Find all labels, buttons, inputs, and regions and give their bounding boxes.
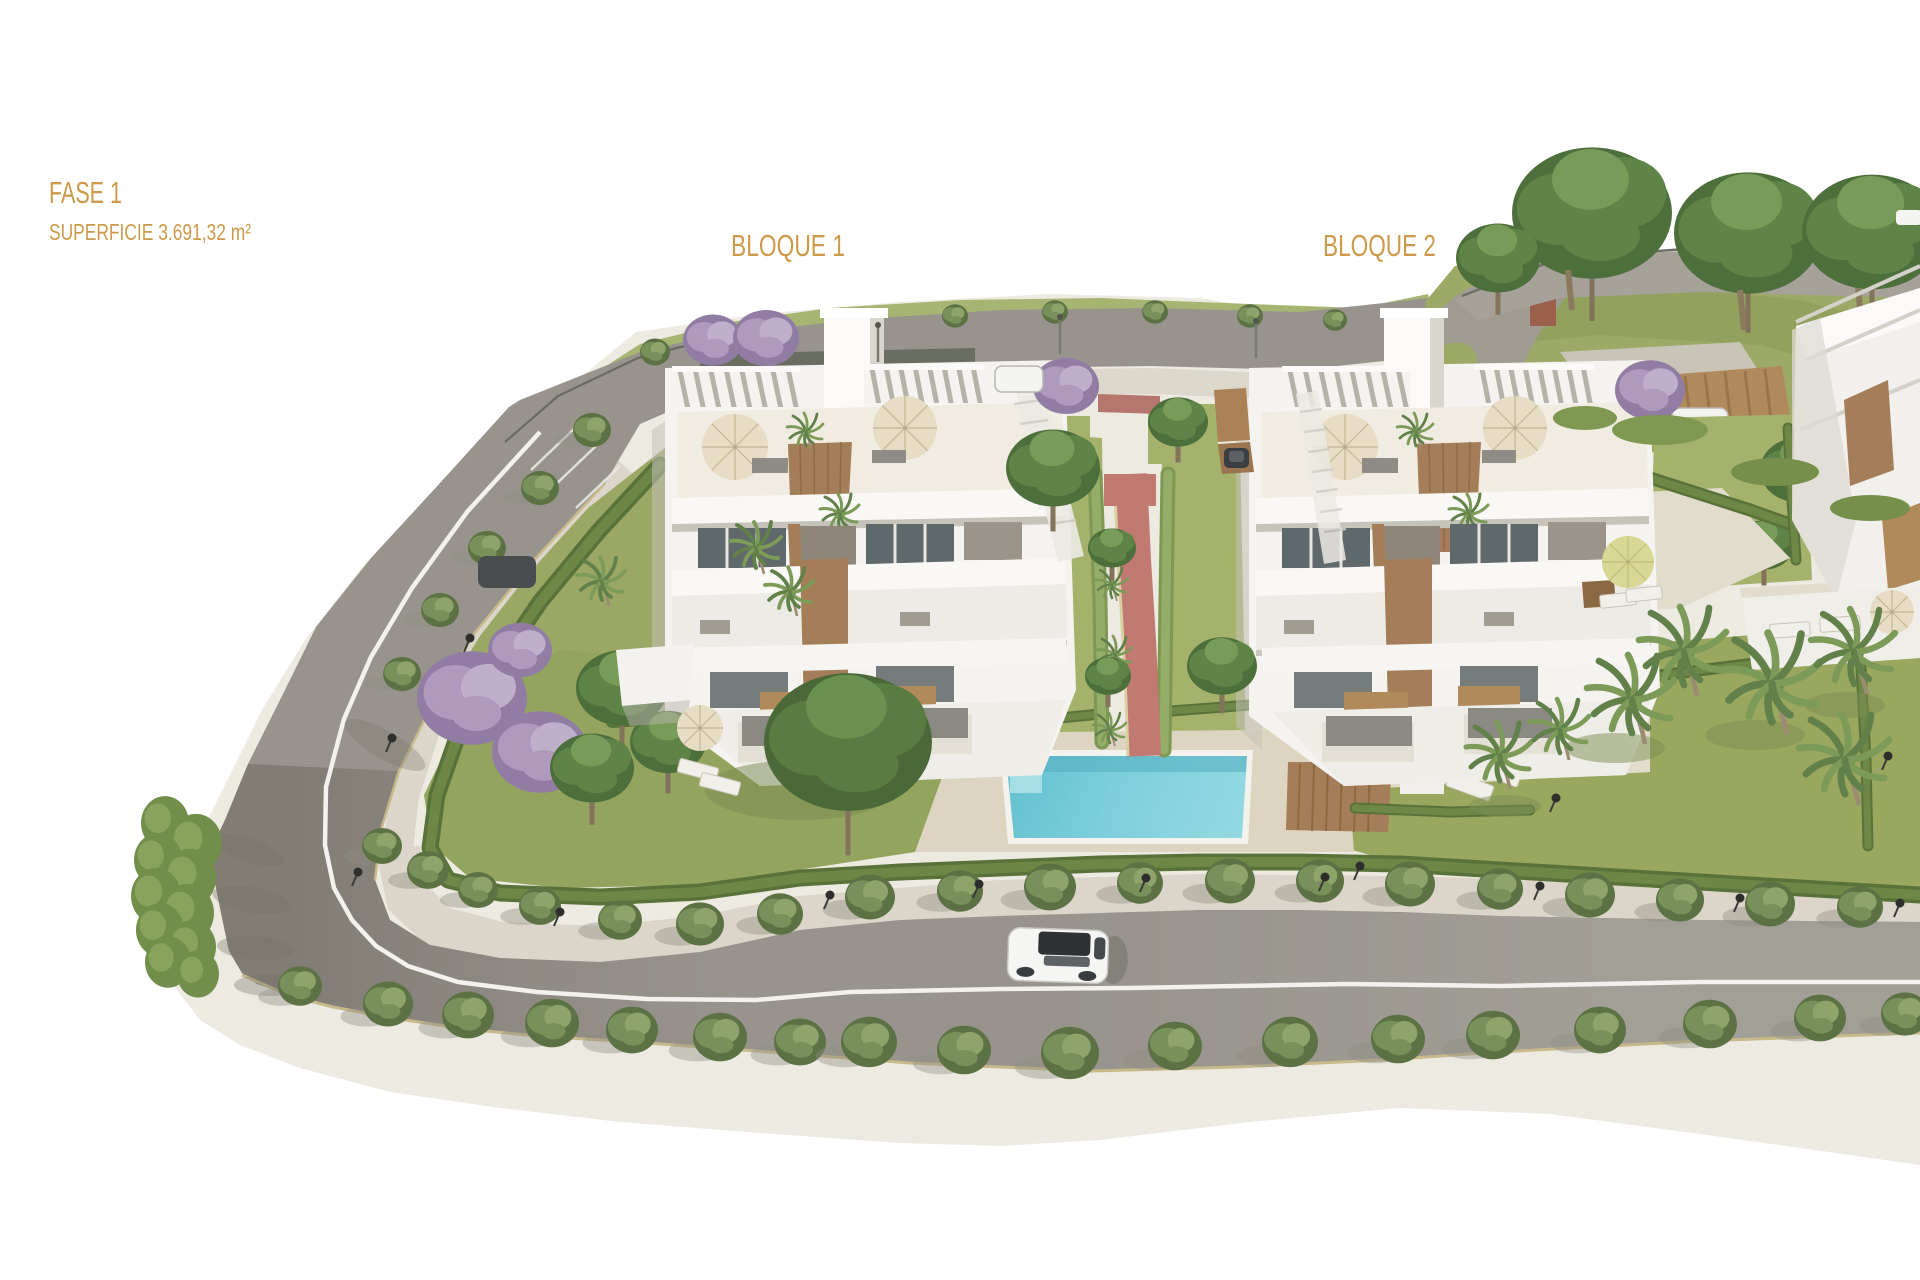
svg-text:SUPERFICIE 3.691,32 m²: SUPERFICIE 3.691,32 m² — [49, 219, 251, 245]
svg-text:FASE 1: FASE 1 — [49, 175, 122, 210]
svg-text:BLOQUE 2: BLOQUE 2 — [1323, 228, 1436, 263]
svg-text:BLOQUE 1: BLOQUE 1 — [731, 228, 845, 263]
